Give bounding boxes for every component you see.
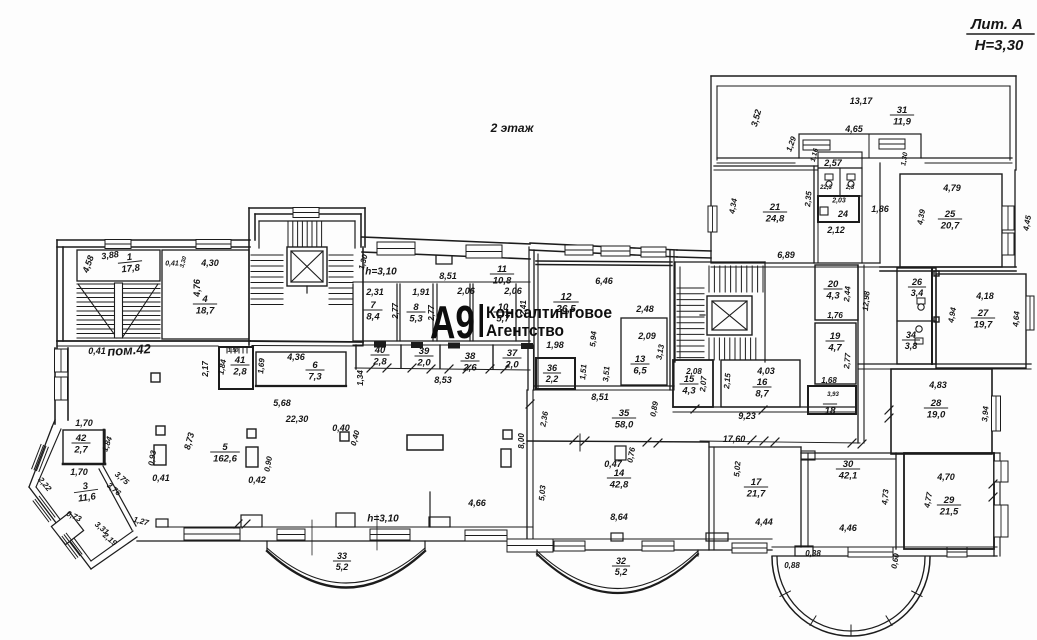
svg-text:5,03: 5,03 [537, 484, 547, 501]
svg-text:28: 28 [930, 398, 942, 409]
svg-text:2,0: 2,0 [504, 360, 519, 371]
svg-text:Консалтинговое: Консалтинговое [486, 304, 612, 322]
svg-text:4,3: 4,3 [681, 386, 696, 397]
svg-text:1,76: 1,76 [827, 311, 843, 320]
svg-text:39: 39 [419, 346, 430, 357]
svg-text:4,70: 4,70 [936, 472, 955, 482]
svg-text:38: 38 [465, 351, 476, 362]
svg-text:5: 5 [222, 442, 228, 453]
svg-text:А9: А9 [430, 296, 475, 348]
svg-text:11,9: 11,9 [893, 117, 912, 128]
svg-text:30: 30 [843, 459, 854, 470]
svg-text:19,7: 19,7 [974, 320, 993, 331]
svg-text:2 этаж: 2 этаж [490, 121, 535, 135]
svg-text:2,17: 2,17 [201, 361, 210, 378]
svg-text:2,35: 2,35 [803, 190, 813, 208]
svg-text:34: 34 [906, 330, 916, 340]
svg-text:14: 14 [614, 468, 625, 479]
svg-text:1: 1 [126, 252, 132, 263]
svg-text:1,70: 1,70 [70, 467, 88, 477]
svg-text:42: 42 [75, 433, 87, 444]
svg-text:0,41: 0,41 [152, 473, 170, 483]
svg-text:0,88: 0,88 [784, 561, 800, 570]
svg-text:7: 7 [370, 300, 376, 311]
svg-text:4,3: 4,3 [825, 291, 840, 302]
svg-text:4,76: 4,76 [192, 278, 202, 298]
svg-text:5,2: 5,2 [615, 567, 628, 577]
svg-text:0,38: 0,38 [805, 549, 821, 558]
svg-text:22,3: 22,3 [819, 185, 832, 191]
svg-text:2,31: 2,31 [365, 287, 384, 297]
svg-text:0,42: 0,42 [248, 475, 266, 485]
svg-text:1,91: 1,91 [412, 287, 430, 297]
svg-text:36: 36 [547, 363, 558, 373]
svg-text:4,73: 4,73 [880, 488, 890, 506]
svg-text:8,64: 8,64 [610, 512, 628, 522]
svg-text:17,8: 17,8 [121, 262, 141, 275]
svg-text:5,68: 5,68 [273, 398, 291, 408]
svg-text:4,65: 4,65 [844, 124, 864, 134]
svg-text:2,3: 2,3 [845, 185, 855, 191]
svg-text:6,89: 6,89 [777, 250, 795, 260]
svg-text:3,4: 3,4 [911, 288, 924, 298]
svg-text:4,83: 4,83 [928, 380, 947, 390]
svg-text:0,41: 0,41 [88, 346, 106, 356]
svg-text:35: 35 [619, 408, 630, 419]
svg-text:2,8: 2,8 [232, 367, 247, 378]
svg-text:h=3,10: h=3,10 [365, 267, 397, 278]
svg-text:17: 17 [751, 477, 762, 488]
svg-text:3,94: 3,94 [980, 405, 990, 422]
svg-text:18: 18 [824, 406, 836, 417]
svg-text:5,02: 5,02 [732, 460, 742, 477]
svg-text:4,44: 4,44 [754, 517, 773, 527]
svg-text:24: 24 [837, 209, 848, 219]
svg-text:8,7: 8,7 [755, 389, 769, 400]
svg-text:21,5: 21,5 [939, 507, 959, 518]
svg-text:21: 21 [769, 202, 781, 213]
svg-text:4,79: 4,79 [942, 183, 961, 193]
svg-text:8,53: 8,53 [434, 375, 452, 385]
svg-text:8: 8 [413, 302, 419, 313]
svg-text:4,18: 4,18 [975, 291, 994, 301]
svg-text:1,86: 1,86 [871, 204, 890, 214]
svg-text:12: 12 [560, 292, 572, 303]
svg-text:0,40: 0,40 [332, 423, 350, 433]
svg-text:8,4: 8,4 [366, 312, 380, 323]
svg-text:Н=3,30: Н=3,30 [975, 37, 1024, 54]
svg-text:9,23: 9,23 [738, 411, 756, 421]
svg-text:0,41: 0,41 [165, 260, 179, 267]
svg-text:3,93: 3,93 [827, 392, 839, 398]
svg-text:11: 11 [497, 264, 507, 275]
svg-text:1,50: 1,50 [228, 348, 239, 354]
svg-text:3,51: 3,51 [601, 365, 611, 382]
svg-text:4,46: 4,46 [838, 523, 858, 533]
svg-text:2,06: 2,06 [456, 286, 476, 296]
svg-text:42,1: 42,1 [838, 471, 858, 482]
svg-text:20,7: 20,7 [940, 221, 960, 232]
svg-text:6: 6 [312, 360, 318, 371]
svg-text:29: 29 [943, 495, 955, 506]
svg-text:37: 37 [507, 348, 518, 359]
svg-text:18,7: 18,7 [196, 306, 215, 317]
svg-text:2,44: 2,44 [842, 285, 852, 303]
svg-text:22,30: 22,30 [285, 414, 309, 424]
svg-text:17,60: 17,60 [723, 434, 746, 444]
svg-text:2,77: 2,77 [391, 303, 400, 320]
svg-text:2,8: 2,8 [372, 357, 387, 368]
svg-text:32: 32 [616, 556, 626, 566]
svg-text:3,8: 3,8 [905, 341, 918, 351]
svg-text:1,68: 1,68 [821, 376, 837, 385]
svg-text:25: 25 [944, 209, 956, 220]
svg-text:8,51: 8,51 [439, 271, 457, 281]
svg-text:4,66: 4,66 [467, 498, 487, 508]
svg-text:40: 40 [374, 345, 386, 356]
svg-text:2,2: 2,2 [545, 374, 559, 384]
svg-text:1,34: 1,34 [356, 370, 365, 386]
svg-text:1,98: 1,98 [546, 340, 564, 350]
svg-text:42,8: 42,8 [609, 480, 629, 491]
svg-text:2,6: 2,6 [462, 363, 477, 374]
svg-text:19,0: 19,0 [927, 410, 946, 421]
svg-text:24,8: 24,8 [765, 214, 785, 225]
svg-text:41: 41 [234, 355, 246, 366]
svg-text:13: 13 [635, 354, 646, 365]
svg-text:6,46: 6,46 [595, 276, 614, 286]
svg-text:4,64: 4,64 [1011, 310, 1021, 328]
svg-text:2,06: 2,06 [503, 286, 523, 296]
svg-text:4,7: 4,7 [827, 343, 842, 354]
svg-text:2,15: 2,15 [722, 372, 732, 390]
svg-text:26: 26 [911, 277, 923, 287]
svg-text:6,5: 6,5 [633, 366, 647, 377]
svg-text:5,3: 5,3 [409, 314, 423, 325]
svg-text:2,77: 2,77 [842, 352, 852, 370]
svg-text:8,51: 8,51 [591, 392, 609, 402]
svg-text:2,03: 2,03 [831, 197, 846, 204]
svg-text:пом.42: пом.42 [107, 341, 152, 359]
svg-text:2,07: 2,07 [698, 375, 708, 393]
svg-text:15: 15 [684, 374, 695, 385]
svg-text:7,3: 7,3 [308, 372, 322, 383]
svg-text:8,00: 8,00 [517, 433, 526, 449]
svg-text:h=3,10: h=3,10 [367, 514, 399, 525]
svg-text:2,12: 2,12 [826, 225, 845, 235]
svg-text:12,98: 12,98 [861, 290, 872, 311]
svg-text:19: 19 [830, 331, 841, 342]
svg-text:4: 4 [201, 294, 208, 305]
svg-text:162,6: 162,6 [213, 454, 237, 465]
svg-text:31: 31 [897, 105, 908, 116]
svg-text:4,30: 4,30 [200, 258, 219, 268]
svg-text:5,94: 5,94 [588, 330, 598, 347]
svg-text:27: 27 [977, 308, 989, 319]
svg-text:2,7: 2,7 [73, 445, 88, 456]
svg-text:1,69: 1,69 [256, 357, 266, 374]
svg-text:13,17: 13,17 [850, 96, 874, 106]
svg-text:10,8: 10,8 [493, 276, 512, 287]
svg-text:21,7: 21,7 [746, 489, 766, 500]
svg-text:16: 16 [757, 377, 768, 388]
svg-text:4,03: 4,03 [756, 366, 775, 376]
svg-text:2,09: 2,09 [637, 331, 656, 341]
svg-text:5,2: 5,2 [336, 562, 349, 572]
svg-text:1,51: 1,51 [578, 363, 588, 380]
svg-text:20: 20 [827, 279, 839, 290]
svg-text:1,70: 1,70 [75, 418, 93, 428]
svg-text:2,0: 2,0 [416, 358, 431, 369]
svg-text:Лит. А: Лит. А [970, 16, 1023, 33]
svg-text:2,48: 2,48 [635, 304, 654, 314]
svg-text:2,57: 2,57 [823, 158, 843, 168]
svg-text:33: 33 [337, 551, 347, 561]
svg-text:4,36: 4,36 [286, 352, 306, 362]
svg-text:58,0: 58,0 [615, 420, 634, 431]
svg-text:Агентство: Агентство [486, 322, 564, 340]
